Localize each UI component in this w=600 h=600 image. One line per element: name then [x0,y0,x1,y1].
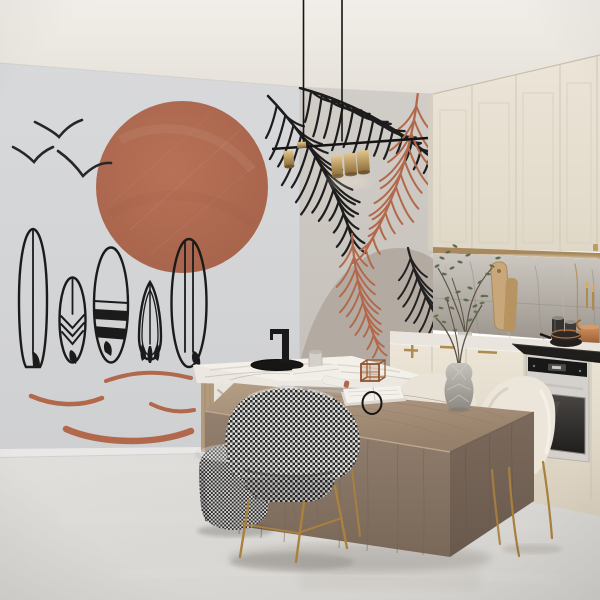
interior-photo [0,0,600,600]
vignette [0,0,600,600]
